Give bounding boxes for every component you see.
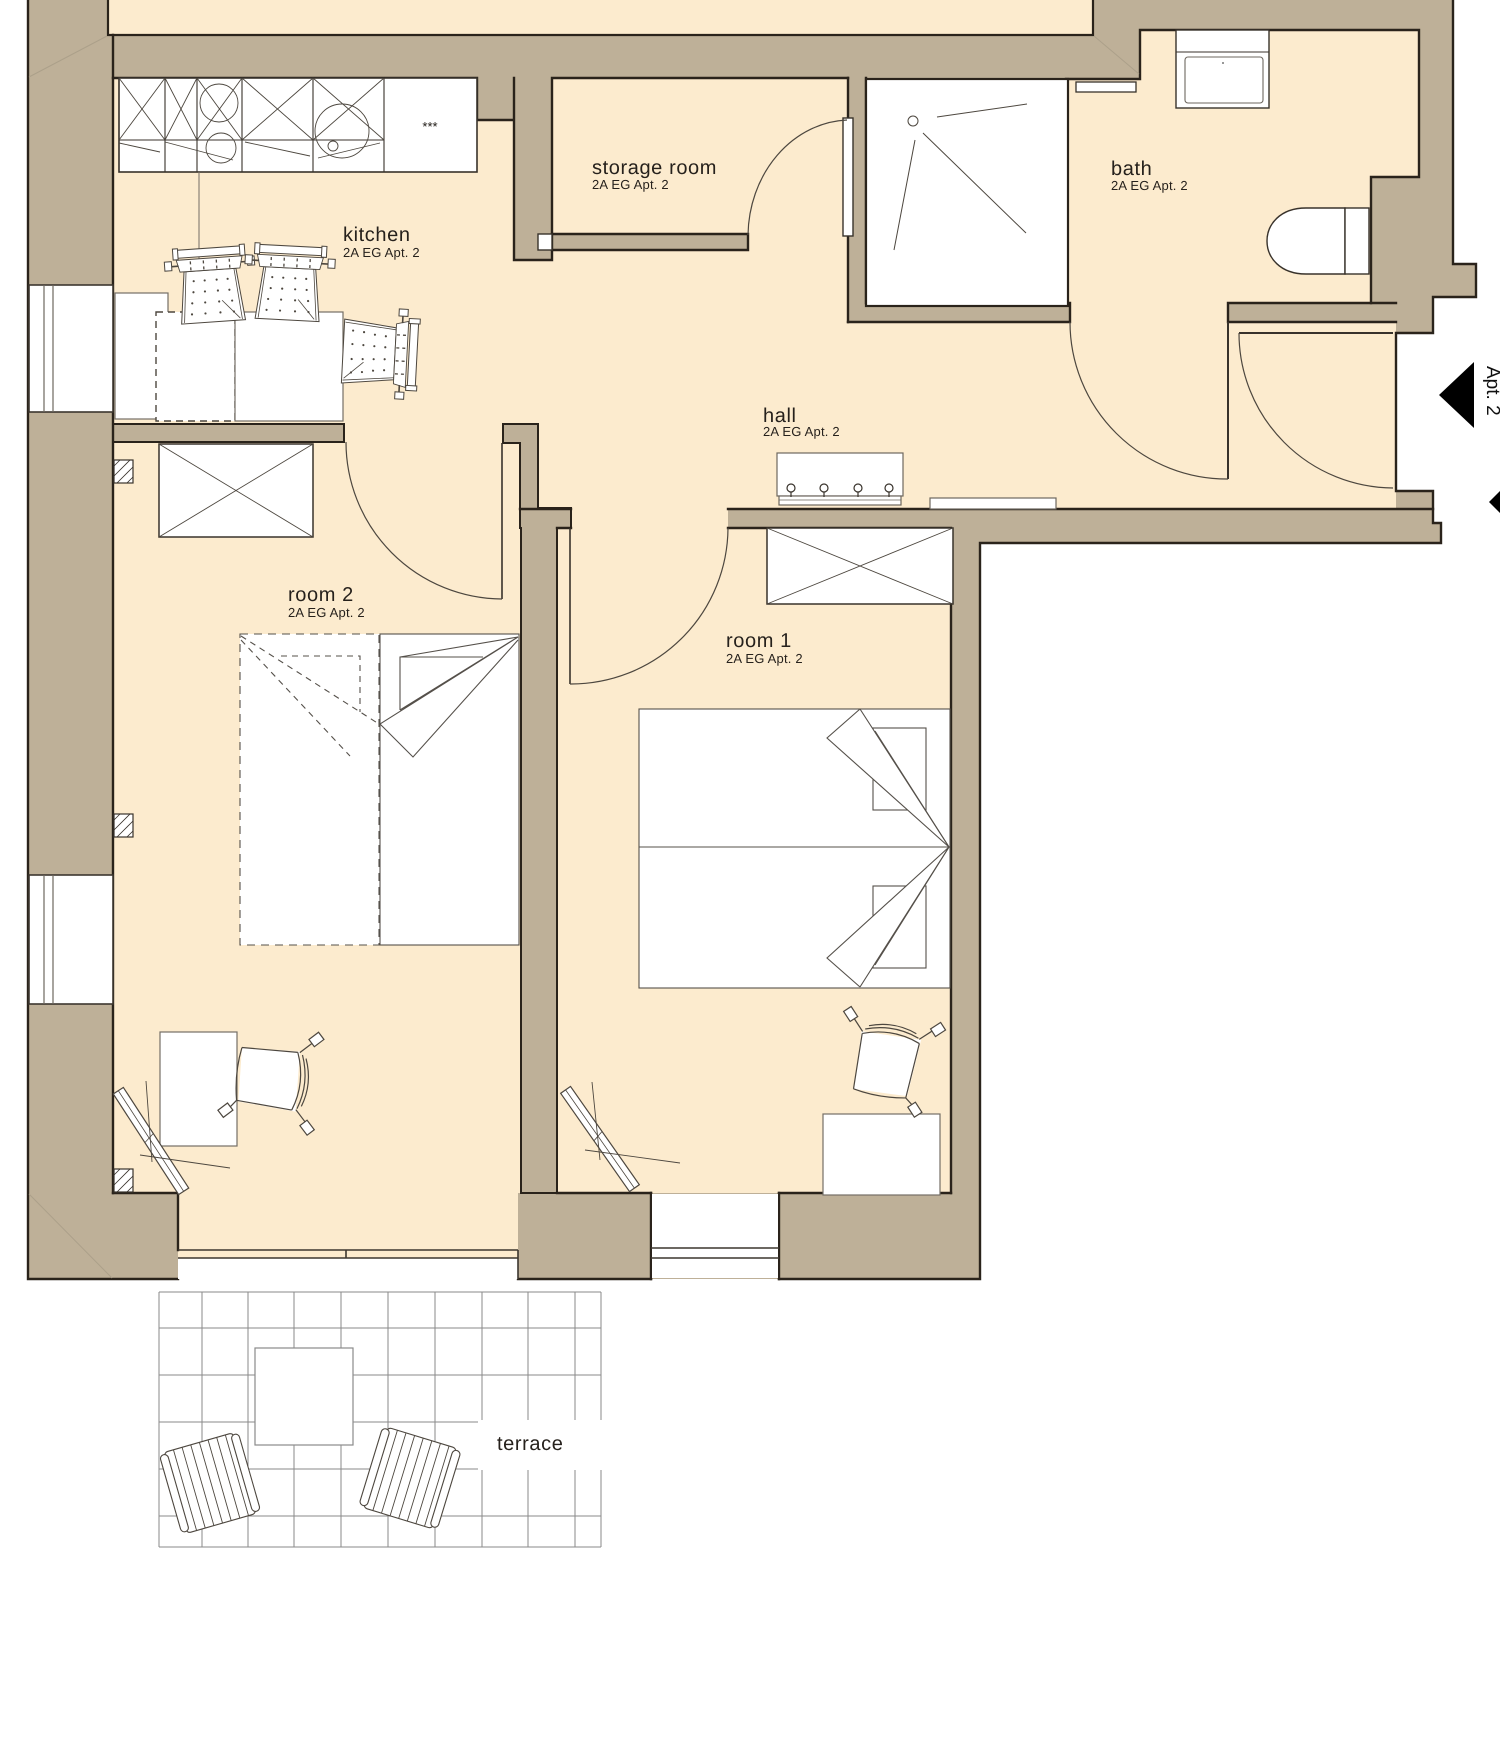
svg-text:2A EG Apt. 2: 2A EG Apt. 2 <box>763 424 840 439</box>
svg-text:bath: bath <box>1111 158 1152 180</box>
svg-text:kitchen: kitchen <box>343 224 411 246</box>
svg-text:***: *** <box>422 119 437 134</box>
svg-text:2A EG Apt. 2: 2A EG Apt. 2 <box>592 177 669 192</box>
svg-text:2A EG Apt. 2: 2A EG Apt. 2 <box>726 651 803 666</box>
svg-text:storage room: storage room <box>592 157 717 179</box>
svg-text:room 2: room 2 <box>288 584 354 606</box>
svg-text:2A EG Apt. 2: 2A EG Apt. 2 <box>343 245 420 260</box>
svg-text:Apt. 2: Apt. 2 <box>1482 366 1500 416</box>
svg-text:2A EG Apt. 2: 2A EG Apt. 2 <box>288 605 365 620</box>
svg-text:room 1: room 1 <box>726 630 792 652</box>
svg-text:terrace: terrace <box>497 1433 563 1455</box>
svg-text:2A EG Apt. 2: 2A EG Apt. 2 <box>1111 178 1188 193</box>
